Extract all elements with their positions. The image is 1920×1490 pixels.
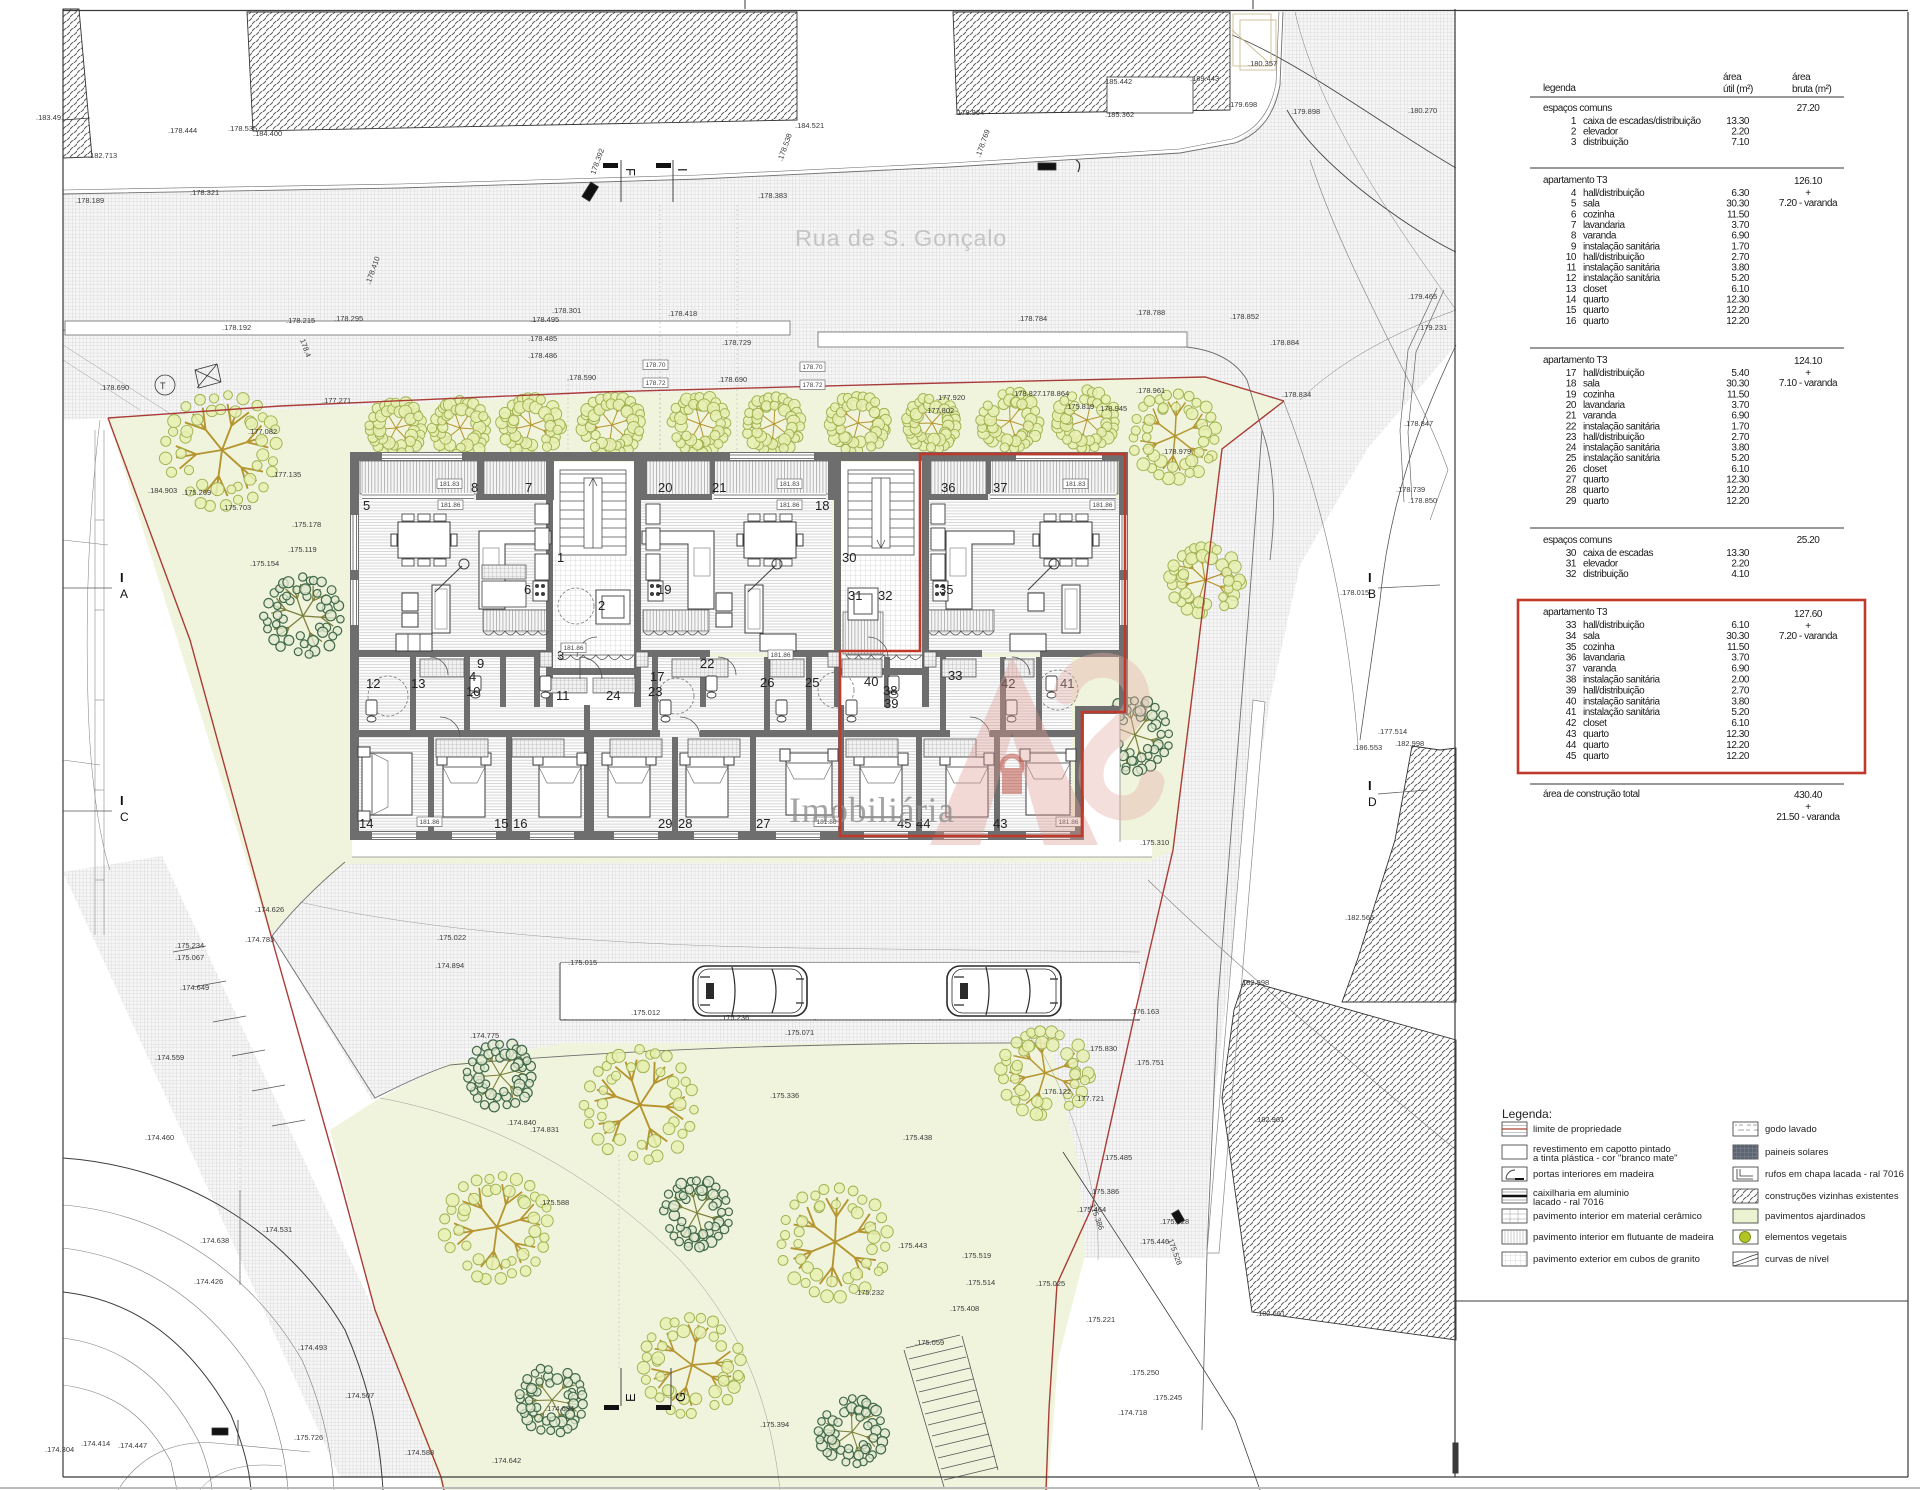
svg-text:5.20: 5.20 — [1731, 707, 1750, 718]
svg-text:.177.514: .177.514 — [1378, 727, 1407, 736]
svg-text:.184.903: .184.903 — [148, 486, 177, 495]
svg-text:7.20 - varanda: 7.20 - varanda — [1779, 198, 1838, 209]
svg-text:39: 39 — [884, 696, 898, 711]
svg-text:.178.015: .178.015 — [1340, 588, 1369, 597]
svg-text:40: 40 — [1566, 696, 1577, 707]
svg-text:.174.493: .174.493 — [298, 1343, 327, 1352]
svg-text:25.20: 25.20 — [1797, 535, 1821, 546]
svg-text:.182.565: .182.565 — [1345, 913, 1374, 922]
svg-text:32: 32 — [1566, 569, 1577, 580]
svg-text:.178.788: .178.788 — [1136, 308, 1165, 317]
svg-text:.175.408: .175.408 — [950, 1304, 979, 1313]
svg-text:4: 4 — [1571, 188, 1577, 199]
svg-text:9: 9 — [1571, 241, 1577, 252]
svg-text:.175.178: .175.178 — [292, 520, 321, 529]
svg-text:3.70: 3.70 — [1731, 400, 1750, 411]
svg-text:.175.232: .175.232 — [855, 1288, 884, 1297]
svg-text:.175.588: .175.588 — [540, 1198, 569, 1207]
svg-text:godo lavado: godo lavado — [1765, 1124, 1817, 1135]
svg-text:15: 15 — [494, 816, 508, 831]
svg-text:.174.588: .174.588 — [405, 1448, 434, 1457]
svg-text:.179.231: .179.231 — [1418, 323, 1447, 332]
svg-text:.175.394: .175.394 — [760, 1420, 789, 1429]
svg-text:181.83: 181.83 — [440, 481, 460, 488]
svg-text:25: 25 — [1566, 453, 1577, 464]
svg-text:.175.119: .175.119 — [288, 545, 317, 554]
svg-text:26: 26 — [1566, 464, 1577, 475]
svg-text:.175.234: .175.234 — [175, 941, 204, 950]
svg-text:.179.465: .179.465 — [1408, 292, 1437, 301]
svg-text:12.30: 12.30 — [1726, 729, 1750, 740]
svg-text:36: 36 — [941, 480, 955, 495]
svg-text:178.72: 178.72 — [646, 380, 666, 387]
svg-text:construções vizinhas existente: construções vizinhas existentes — [1765, 1191, 1899, 1202]
svg-text:181.86: 181.86 — [1093, 502, 1113, 509]
svg-text:.178.295: .178.295 — [334, 314, 363, 323]
svg-text:.178.418: .178.418 — [668, 309, 697, 318]
svg-text:lavandaria: lavandaria — [1583, 653, 1626, 664]
svg-text:11.50: 11.50 — [1727, 209, 1750, 220]
svg-text:.175.485: .175.485 — [1103, 1153, 1132, 1162]
svg-text:quarto: quarto — [1583, 485, 1610, 496]
svg-text:lacado - ral 7016: lacado - ral 7016 — [1533, 1197, 1604, 1208]
svg-text:17: 17 — [1566, 368, 1577, 379]
svg-text:2.20: 2.20 — [1731, 127, 1750, 138]
svg-text:.178.852: .178.852 — [1230, 312, 1259, 321]
svg-text:.177.920: .177.920 — [936, 393, 965, 402]
svg-text:7.10: 7.10 — [1731, 137, 1750, 148]
svg-text:sala: sala — [1583, 631, 1600, 642]
svg-text:178.70: 178.70 — [646, 362, 666, 369]
svg-text:2.00: 2.00 — [1731, 675, 1750, 686]
svg-text:22: 22 — [1566, 421, 1577, 432]
svg-text:.175.726: .175.726 — [294, 1433, 323, 1442]
svg-text:.174.414: .174.414 — [81, 1439, 110, 1448]
svg-text:.175.250: .175.250 — [1130, 1368, 1159, 1377]
svg-text:4.10: 4.10 — [1731, 569, 1750, 580]
svg-text:.174.783: .174.783 — [245, 935, 274, 944]
svg-text:instalação sanitária: instalação sanitária — [1583, 707, 1660, 718]
svg-text:3.70: 3.70 — [1731, 653, 1750, 664]
svg-text:11: 11 — [556, 688, 570, 703]
svg-text:181.83: 181.83 — [1066, 481, 1086, 488]
svg-text:1.70: 1.70 — [1731, 241, 1750, 252]
svg-text:23: 23 — [648, 684, 662, 699]
svg-text:3.80: 3.80 — [1731, 263, 1750, 274]
svg-text:T: T — [160, 381, 166, 391]
svg-text:6.10: 6.10 — [1731, 284, 1750, 295]
svg-text:1: 1 — [1571, 116, 1577, 127]
svg-text:B: B — [1368, 587, 1376, 601]
svg-text:7.20 - varanda: 7.20 - varanda — [1779, 631, 1838, 642]
svg-text:.175.154: .175.154 — [250, 559, 279, 568]
svg-text:.174.447: .174.447 — [118, 1441, 147, 1450]
svg-text:31: 31 — [1566, 559, 1577, 570]
svg-text:.178.945: .178.945 — [1098, 404, 1127, 413]
svg-text:41: 41 — [1566, 707, 1577, 718]
svg-text:8: 8 — [1571, 231, 1577, 242]
svg-text:.178.864: .178.864 — [1040, 389, 1069, 398]
svg-text:.182.998: .182.998 — [1240, 978, 1269, 987]
svg-text:E: E — [623, 1393, 638, 1402]
svg-text:8: 8 — [471, 480, 478, 495]
svg-text:.176.122: .176.122 — [1042, 1087, 1071, 1096]
svg-text:elevador: elevador — [1583, 127, 1619, 138]
svg-text:A: A — [120, 587, 128, 601]
svg-text:.186.553: .186.553 — [1353, 743, 1382, 752]
svg-text:33: 33 — [1566, 620, 1577, 631]
svg-text:30.30: 30.30 — [1726, 199, 1750, 210]
svg-text:19: 19 — [1566, 389, 1577, 400]
svg-text:11.50: 11.50 — [1727, 389, 1750, 400]
svg-text:2.70: 2.70 — [1731, 685, 1750, 696]
svg-text:2.70: 2.70 — [1731, 252, 1750, 263]
svg-text:30: 30 — [1566, 548, 1577, 559]
svg-text:5.20: 5.20 — [1731, 273, 1750, 284]
svg-text:12.20: 12.20 — [1726, 485, 1750, 496]
svg-text:43: 43 — [993, 816, 1007, 831]
svg-text:instalação sanitária: instalação sanitária — [1583, 696, 1660, 707]
svg-text:pavimentos ajardinados: pavimentos ajardinados — [1765, 1211, 1866, 1222]
svg-text:.175.819: .175.819 — [1065, 402, 1094, 411]
svg-text:181.86: 181.86 — [564, 645, 584, 652]
svg-text:12.20: 12.20 — [1726, 316, 1750, 327]
svg-text:.178.590: .178.590 — [567, 373, 596, 382]
svg-text:21.50 - varanda: 21.50 - varanda — [1776, 812, 1840, 823]
svg-text:.175.751: .175.751 — [1135, 1058, 1164, 1067]
svg-text:35: 35 — [1566, 642, 1577, 653]
svg-text:área: área — [1723, 72, 1742, 83]
svg-text:2: 2 — [598, 598, 605, 613]
svg-text:40: 40 — [864, 674, 878, 689]
svg-text:.175.703: .175.703 — [222, 503, 251, 512]
svg-text:39: 39 — [1566, 685, 1577, 696]
svg-text:.177.082: .177.082 — [248, 427, 277, 436]
svg-text:.175.221: .175.221 — [1086, 1315, 1115, 1324]
svg-text:.178.729: .178.729 — [722, 338, 751, 347]
svg-text:6.10: 6.10 — [1731, 718, 1750, 729]
svg-text:13: 13 — [411, 676, 425, 691]
svg-text:3.80: 3.80 — [1731, 443, 1750, 454]
svg-text:.178.486: .178.486 — [528, 351, 557, 360]
svg-text:.174.694: .174.694 — [545, 1404, 574, 1413]
svg-text:14: 14 — [1566, 295, 1577, 306]
svg-text:pavimento interior em flutuant: pavimento interior em flutuante de madei… — [1533, 1232, 1714, 1243]
svg-text:13.30: 13.30 — [1726, 116, 1750, 127]
svg-text:15: 15 — [1566, 305, 1577, 316]
svg-text:apartamento T3: apartamento T3 — [1543, 175, 1608, 186]
svg-text:.174.649: .174.649 — [180, 983, 209, 992]
svg-text:.175.022: .175.022 — [437, 933, 466, 942]
svg-text:.185.442: .185.442 — [1103, 77, 1132, 86]
svg-text:.182.998: .182.998 — [1395, 739, 1424, 748]
svg-text:27.20: 27.20 — [1797, 103, 1821, 114]
svg-text:quarto: quarto — [1583, 496, 1610, 507]
svg-text:27: 27 — [756, 816, 770, 831]
svg-text:.177.135: .177.135 — [272, 470, 301, 479]
svg-text:38: 38 — [1566, 675, 1577, 686]
svg-text:varanda: varanda — [1583, 231, 1617, 242]
svg-text:.179.898: .179.898 — [1291, 107, 1320, 116]
svg-text:.175.236: .175.236 — [720, 1013, 749, 1022]
svg-text:closet: closet — [1583, 284, 1607, 295]
svg-text:.178.192: .178.192 — [222, 323, 251, 332]
svg-text:.174.775: .174.775 — [470, 1031, 499, 1040]
svg-text:.175.245: .175.245 — [1153, 1393, 1182, 1402]
svg-text:6.10: 6.10 — [1731, 464, 1750, 475]
svg-text:closet: closet — [1583, 718, 1607, 729]
svg-text:.175.386: .175.386 — [1090, 1187, 1119, 1196]
svg-text:181.83: 181.83 — [780, 481, 800, 488]
svg-text:hall/distribuição: hall/distribuição — [1583, 252, 1645, 263]
svg-text:caixa de escadas: caixa de escadas — [1583, 548, 1654, 559]
svg-text:.174.460: .174.460 — [145, 1133, 174, 1142]
svg-text:21: 21 — [1566, 411, 1577, 422]
svg-text:.180.270: .180.270 — [1408, 106, 1437, 115]
svg-text:.174.559: .174.559 — [155, 1053, 184, 1062]
svg-text:31: 31 — [848, 588, 862, 603]
svg-text:6.90: 6.90 — [1731, 231, 1750, 242]
svg-text:21: 21 — [712, 480, 726, 495]
svg-text:16: 16 — [513, 816, 527, 831]
svg-text:124.10: 124.10 — [1794, 356, 1823, 367]
svg-text:20: 20 — [1566, 400, 1577, 411]
svg-text:20: 20 — [658, 480, 672, 495]
svg-text:43: 43 — [1566, 729, 1577, 740]
svg-text:24: 24 — [1566, 443, 1577, 454]
svg-text:.174.638: .174.638 — [200, 1236, 229, 1245]
svg-text:5.40: 5.40 — [1731, 368, 1750, 379]
svg-text:178.72: 178.72 — [803, 382, 823, 389]
svg-text:4: 4 — [469, 669, 476, 684]
svg-text:28: 28 — [678, 816, 692, 831]
svg-text:quarto: quarto — [1583, 751, 1610, 762]
svg-text:instalação sanitária: instalação sanitária — [1583, 453, 1660, 464]
svg-text:12.30: 12.30 — [1726, 295, 1750, 306]
svg-text:44: 44 — [1566, 740, 1577, 751]
svg-text:.177.271: .177.271 — [322, 396, 351, 405]
svg-text:7: 7 — [1571, 220, 1577, 231]
svg-text:.178.964: .178.964 — [955, 108, 984, 117]
svg-text:22: 22 — [700, 656, 714, 671]
svg-text:28: 28 — [1566, 485, 1577, 496]
svg-text:.175.025: .175.025 — [1036, 1279, 1065, 1288]
svg-text:legenda: legenda — [1543, 83, 1576, 94]
svg-text:G: G — [673, 1392, 688, 1402]
svg-text:12.20: 12.20 — [1726, 305, 1750, 316]
svg-text:32: 32 — [878, 588, 892, 603]
svg-text:12.30: 12.30 — [1726, 475, 1750, 486]
svg-text:.178.847: .178.847 — [1404, 419, 1433, 428]
svg-text:.174.531: .174.531 — [263, 1225, 292, 1234]
svg-text:.178.850: .178.850 — [1408, 496, 1437, 505]
svg-text:hall/distribuição: hall/distribuição — [1583, 620, 1645, 631]
svg-text:18: 18 — [1566, 379, 1577, 390]
svg-text:18: 18 — [815, 498, 829, 513]
svg-text:6: 6 — [1571, 209, 1577, 220]
svg-text:.178.834: .178.834 — [1282, 390, 1311, 399]
svg-text:30.30: 30.30 — [1726, 379, 1750, 390]
svg-text:12.20: 12.20 — [1726, 751, 1750, 762]
svg-text:caixa de escadas/distribuição: caixa de escadas/distribuição — [1583, 116, 1701, 127]
svg-text:elevador: elevador — [1583, 559, 1619, 570]
svg-text:.180.357: .180.357 — [1248, 59, 1277, 68]
svg-text:.174.894: .174.894 — [435, 961, 464, 970]
svg-text:1: 1 — [557, 550, 564, 565]
svg-text:3: 3 — [1571, 137, 1577, 148]
svg-text:.182.713: .182.713 — [88, 151, 117, 160]
svg-text:quarto: quarto — [1583, 295, 1610, 306]
svg-text:quarto: quarto — [1583, 305, 1610, 316]
svg-text:limite de propriedade: limite de propriedade — [1533, 1124, 1622, 1135]
svg-text:.182.661: .182.661 — [1256, 1309, 1285, 1318]
svg-text:27: 27 — [1566, 475, 1577, 486]
svg-text:178.70: 178.70 — [803, 364, 823, 371]
svg-text:varanda: varanda — [1583, 411, 1617, 422]
svg-text:I: I — [1368, 778, 1372, 793]
svg-text:.174.718: .174.718 — [1118, 1408, 1147, 1417]
svg-text:10: 10 — [1566, 252, 1577, 263]
svg-text:hall/distribuição: hall/distribuição — [1583, 188, 1645, 199]
svg-text:lavandaria: lavandaria — [1583, 400, 1626, 411]
svg-text:.185.362: .185.362 — [1105, 110, 1134, 119]
svg-text:3.80: 3.80 — [1731, 696, 1750, 707]
svg-text:apartamento T3: apartamento T3 — [1543, 355, 1608, 366]
svg-text:a tinta plástica - cor "branco: a tinta plástica - cor "branco mate" — [1533, 1153, 1678, 1164]
svg-text:.178.739: .178.739 — [1396, 485, 1425, 494]
svg-text:11.50: 11.50 — [1727, 642, 1750, 653]
svg-text:.174.642: .174.642 — [492, 1456, 521, 1465]
svg-text:7.10 - varanda: 7.10 - varanda — [1779, 378, 1838, 389]
svg-text:.174.304: .174.304 — [45, 1445, 74, 1454]
svg-text:6: 6 — [524, 582, 531, 597]
svg-text:bruta (m²): bruta (m²) — [1792, 84, 1832, 95]
svg-text:Rua de S. Gonçalo: Rua de S. Gonçalo — [795, 225, 1007, 251]
svg-text:126.10: 126.10 — [1794, 176, 1823, 187]
svg-text:.175.438: .175.438 — [903, 1133, 932, 1142]
svg-text:sala: sala — [1583, 379, 1600, 390]
svg-text:25: 25 — [805, 675, 819, 690]
svg-text:37: 37 — [1566, 664, 1577, 675]
svg-text:6.90: 6.90 — [1731, 411, 1750, 422]
svg-text:127.60: 127.60 — [1794, 609, 1823, 620]
svg-text:33: 33 — [948, 668, 962, 683]
svg-text:varanda: varanda — [1583, 664, 1617, 675]
svg-text:instalação sanitária: instalação sanitária — [1583, 443, 1660, 454]
svg-text:9: 9 — [477, 656, 484, 671]
svg-text:6.90: 6.90 — [1731, 664, 1750, 675]
svg-text:pavimento interior em material: pavimento interior em material cerâmico — [1533, 1211, 1702, 1222]
svg-text:.183.491: .183.491 — [36, 113, 65, 122]
svg-text:30.30: 30.30 — [1726, 631, 1750, 642]
svg-text:cozinha: cozinha — [1583, 389, 1615, 400]
svg-text:1.70: 1.70 — [1731, 421, 1750, 432]
svg-text:.178.321: .178.321 — [190, 188, 219, 197]
svg-text:cozinha: cozinha — [1583, 642, 1615, 653]
svg-text:11: 11 — [1567, 263, 1577, 274]
svg-text:7: 7 — [525, 480, 532, 495]
svg-text:instalação sanitária: instalação sanitária — [1583, 273, 1660, 284]
svg-text:I: I — [120, 570, 124, 585]
svg-text:3.70: 3.70 — [1731, 220, 1750, 231]
svg-text:hall/distribuição: hall/distribuição — [1583, 432, 1645, 443]
svg-text:sala: sala — [1583, 199, 1600, 210]
svg-text:.178.690: .178.690 — [718, 375, 747, 384]
svg-text:.175.446: .175.446 — [1140, 1237, 1169, 1246]
svg-text:.177.802: .177.802 — [925, 406, 954, 415]
svg-text:útil (m²): útil (m²) — [1723, 84, 1753, 95]
svg-text:.175.071: .175.071 — [785, 1028, 814, 1037]
svg-text:apartamento T3: apartamento T3 — [1543, 607, 1608, 618]
svg-text:42: 42 — [1566, 718, 1577, 729]
svg-text:.178.189: .178.189 — [75, 196, 104, 205]
svg-text:.178.884: .178.884 — [1270, 338, 1299, 347]
svg-text:13: 13 — [1566, 284, 1577, 295]
svg-text:quarto: quarto — [1583, 316, 1610, 327]
svg-text:Imobiliária: Imobiliária — [789, 790, 954, 830]
svg-text:instalação sanitária: instalação sanitária — [1583, 421, 1660, 432]
svg-text:elementos vegetais: elementos vegetais — [1765, 1232, 1847, 1243]
svg-text:45: 45 — [1566, 751, 1577, 762]
svg-text:37: 37 — [993, 480, 1007, 495]
svg-text:cozinha: cozinha — [1583, 209, 1615, 220]
svg-text:closet: closet — [1583, 464, 1607, 475]
svg-text:.176.163: .176.163 — [1130, 1007, 1159, 1016]
svg-text:24: 24 — [606, 688, 620, 703]
svg-text:23: 23 — [1566, 432, 1577, 443]
svg-text:2.70: 2.70 — [1731, 432, 1750, 443]
svg-text:.178.301: .178.301 — [552, 306, 581, 315]
svg-text:2.20: 2.20 — [1731, 559, 1750, 570]
svg-text:C: C — [120, 810, 129, 824]
svg-text:hall/distribuição: hall/distribuição — [1583, 685, 1645, 696]
svg-text:.174.507: .174.507 — [345, 1391, 374, 1400]
svg-text:35: 35 — [939, 582, 953, 597]
svg-text:área de construção total: área de construção total — [1543, 789, 1640, 800]
svg-text:quarto: quarto — [1583, 729, 1610, 740]
svg-text:181.86: 181.86 — [420, 819, 440, 826]
svg-text:12: 12 — [366, 676, 380, 691]
svg-text:.178.383: .178.383 — [758, 191, 787, 200]
svg-text:quarto: quarto — [1583, 740, 1610, 751]
svg-text:.174.626: .174.626 — [255, 905, 284, 914]
svg-text:.175.310: .175.310 — [1140, 838, 1169, 847]
svg-text:.182.961: .182.961 — [1255, 1115, 1284, 1124]
svg-text:30: 30 — [842, 550, 856, 565]
svg-text:5.20: 5.20 — [1731, 453, 1750, 464]
svg-text:.179.698: .179.698 — [1228, 100, 1257, 109]
svg-text:26: 26 — [760, 675, 774, 690]
svg-text:.175.012: .175.012 — [631, 1008, 660, 1017]
svg-text:I: I — [1368, 570, 1372, 585]
svg-text:rufos em chapa lacada - ral 70: rufos em chapa lacada - ral 7016 — [1765, 1169, 1904, 1180]
svg-text:.184.400: .184.400 — [253, 129, 282, 138]
svg-text:quarto: quarto — [1583, 475, 1610, 486]
svg-text:I: I — [675, 168, 690, 172]
svg-text:instalação sanitária: instalação sanitária — [1583, 675, 1660, 686]
svg-text:espaços comuns: espaços comuns — [1543, 103, 1612, 114]
svg-text:12: 12 — [1566, 273, 1577, 284]
svg-text:.177.721: .177.721 — [1075, 1094, 1104, 1103]
svg-text:instalação sanitária: instalação sanitária — [1583, 241, 1660, 252]
svg-text:5: 5 — [1571, 199, 1577, 210]
svg-text:curvas de nível: curvas de nível — [1765, 1254, 1829, 1265]
svg-text:.178.444: .178.444 — [168, 126, 197, 135]
svg-text:16: 16 — [1566, 316, 1577, 327]
svg-text:10: 10 — [466, 684, 480, 699]
svg-text:12.20: 12.20 — [1726, 740, 1750, 751]
svg-text:.174.426: .174.426 — [194, 1277, 223, 1286]
